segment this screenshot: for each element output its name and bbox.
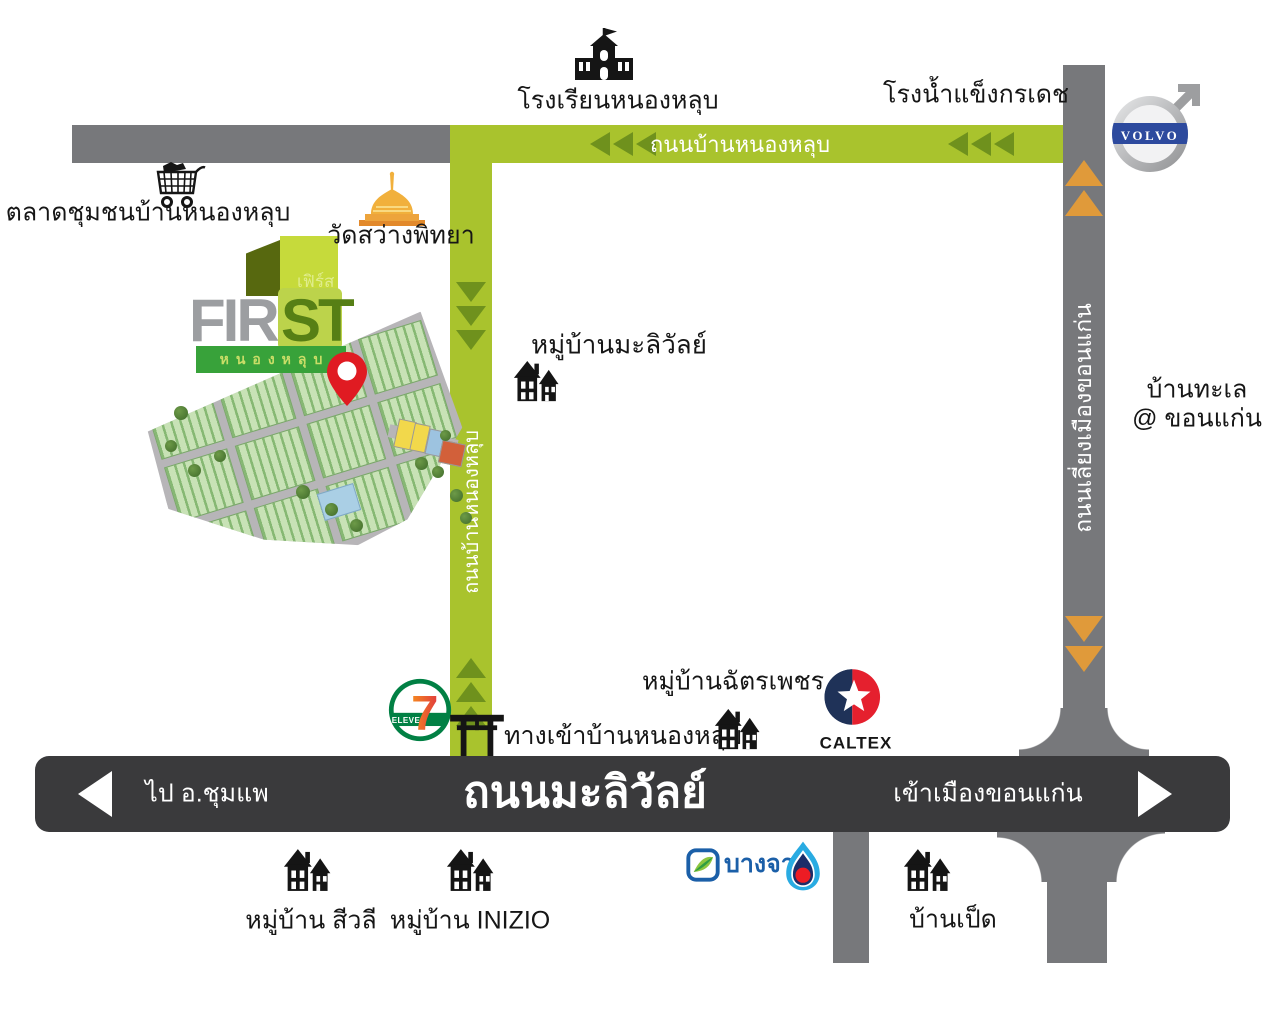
arrow-triangle-icon [994, 132, 1014, 156]
arrow-triangle-icon [590, 132, 610, 156]
road-bypass-south [1047, 830, 1107, 963]
map-canvas: { "roads": { "ban_nong_lub_h": "ถนนบ้านห… [0, 0, 1280, 1013]
tree-icon [350, 519, 363, 532]
tree-icon [165, 440, 177, 452]
tree-icon [214, 450, 226, 462]
arrow-triangle-icon [613, 132, 633, 156]
road-fillet [1019, 708, 1063, 756]
site-plan-block [183, 511, 263, 586]
road-label-maliwan-east: เข้าเมืองขอนแก่น [893, 780, 1082, 808]
site-plan-block [306, 404, 386, 479]
arrow-triangle-icon [456, 306, 486, 326]
road-fillet [1107, 830, 1165, 882]
ban-talay-label-line2: @ ขอนแก่น [1132, 405, 1262, 433]
temple-icon [355, 170, 429, 228]
houses-icon [903, 846, 955, 895]
school-label: โรงเรียนหนองหลุบ [517, 87, 718, 115]
ptt-logo-icon [783, 840, 823, 892]
road-label-maliwan-west: ไป อ.ชุมแพ [145, 780, 268, 808]
logo-banner: หนองหลุบ [196, 346, 346, 373]
arrow-triangle-icon [1065, 160, 1103, 186]
volvo-wordmark: VOLVO [1121, 128, 1179, 143]
road-label-bypass: ถนนเลี่ยงเมืองขอนแก่น [1066, 303, 1102, 533]
ban-ped-label: บ้านเป็ด [909, 906, 997, 934]
arrow-triangle-icon [1065, 646, 1103, 672]
chatpetch-village-label: หมู่บ้านฉัตรเพชร [642, 668, 824, 696]
site-plan-block [145, 385, 225, 460]
tree-icon [415, 457, 428, 470]
caltex-logo-icon [821, 664, 887, 730]
west-arrow-icon [78, 771, 112, 817]
ban-talay-label-line1: บ้านทะเล [1147, 376, 1248, 404]
arrow-triangle-icon [1065, 616, 1103, 642]
sivalee-village-label: หมู่บ้าน สีวลี [245, 907, 377, 935]
seven-numeral: 7 [411, 687, 438, 741]
bypass-down-arrows-icon [1065, 616, 1103, 672]
tree-icon [432, 466, 444, 478]
road-gray-west [72, 125, 452, 163]
bypass-up-arrows-icon [1065, 160, 1103, 216]
market-label: ตลาดชุมชนบ้านหนองหลุบ [6, 199, 291, 227]
houses-icon [714, 706, 764, 753]
tree-icon [450, 489, 463, 502]
ice-factory-label: โรงน้ำแข็งกรเดช [883, 81, 1069, 109]
houses-icon [446, 846, 498, 895]
tree-icon [460, 512, 472, 524]
bangchak-logo-icon [686, 848, 720, 882]
caltex-wordmark: CALTEX [820, 735, 893, 754]
school-icon [572, 26, 636, 92]
inizio-village-label: หมู่บ้าน INIZIO [390, 907, 551, 935]
east-arrow-icon [1138, 771, 1172, 817]
down-arrows-icon [456, 282, 486, 350]
site-plan-block [164, 448, 244, 523]
logo-brand-en-green: ST [281, 286, 352, 355]
road-fillet [997, 830, 1047, 882]
entrance-label: ทางเข้าบ้านหนองหลุบ [504, 723, 742, 751]
site-plan [158, 350, 463, 555]
seven-eleven-logo-icon: ELEVEn 7 [387, 677, 453, 743]
arrow-triangle-icon [456, 682, 486, 702]
road-label-maliwan: ถนนมะลิวัลย์ [463, 769, 707, 817]
houses-icon [513, 358, 563, 405]
west-arrows-icon [590, 132, 656, 156]
road-label-ban-nong-lub-h: ถนนบ้านหนองหลุบ [650, 133, 830, 157]
location-pin-icon [325, 350, 369, 408]
volvo-logo-icon: VOLVO [1106, 84, 1200, 178]
site-plan-cell-red [438, 440, 466, 467]
tree-icon [174, 406, 188, 420]
arrow-triangle-icon [1065, 190, 1103, 216]
arrow-triangle-icon [456, 282, 486, 302]
tree-icon [296, 485, 310, 499]
arrow-triangle-icon [456, 330, 486, 350]
tree-icon [188, 464, 201, 477]
west-arrows-icon [948, 132, 1014, 156]
tree-icon [440, 430, 451, 441]
houses-icon [283, 846, 335, 895]
tree-icon [325, 503, 338, 516]
arrow-triangle-icon [971, 132, 991, 156]
logo-brand-en-gray: FIR [189, 286, 277, 355]
arrow-triangle-icon [948, 132, 968, 156]
maliwan-village-label: หมู่บ้านมะลิวัลย์ [531, 331, 707, 360]
temple-label: วัดสว่างพิทยา [327, 222, 474, 250]
arrow-triangle-icon [456, 658, 486, 678]
road-fillet [1105, 708, 1149, 756]
road-small-south [833, 830, 869, 963]
logo-banner-text: หนองหลุบ [213, 349, 330, 371]
torii-gate-icon [450, 710, 504, 756]
